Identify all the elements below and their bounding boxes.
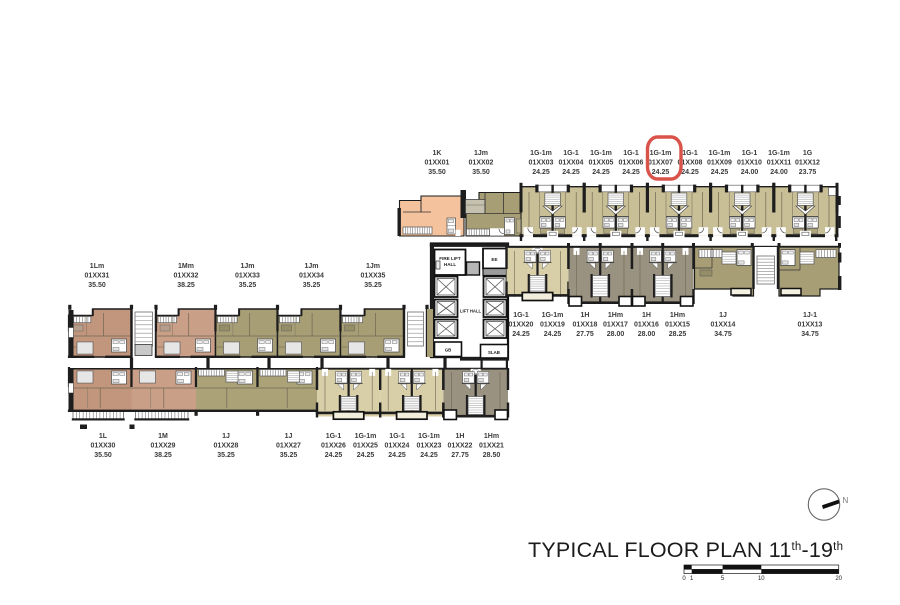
- svg-text:01XX12: 01XX12: [795, 159, 820, 166]
- svg-text:1G-1: 1G-1: [389, 433, 405, 440]
- svg-text:24.25: 24.25: [388, 452, 406, 459]
- svg-text:01XX18: 01XX18: [573, 322, 598, 329]
- svg-text:1Hm: 1Hm: [608, 312, 623, 319]
- svg-text:01XX32: 01XX32: [174, 273, 199, 280]
- svg-text:HALL: HALL: [444, 262, 456, 267]
- svg-text:01XX28: 01XX28: [214, 443, 239, 450]
- svg-text:01XX10: 01XX10: [737, 159, 762, 166]
- svg-text:01XX33: 01XX33: [235, 273, 260, 280]
- svg-text:24.00: 24.00: [741, 169, 759, 176]
- svg-text:1J: 1J: [222, 433, 230, 440]
- svg-text:28.00: 28.00: [607, 331, 625, 338]
- svg-text:24.25: 24.25: [681, 169, 699, 176]
- svg-text:01XX02: 01XX02: [469, 159, 494, 166]
- svg-text:N: N: [843, 496, 849, 505]
- svg-text:1G-1: 1G-1: [563, 150, 579, 157]
- svg-text:1G-1: 1G-1: [623, 150, 639, 157]
- svg-text:1Jm: 1Jm: [240, 263, 254, 270]
- svg-text:01XX31: 01XX31: [85, 273, 110, 280]
- svg-text:35.50: 35.50: [88, 282, 106, 289]
- svg-text:24.25: 24.25: [652, 169, 670, 176]
- svg-text:38.25: 38.25: [177, 282, 195, 289]
- svg-text:1G-1: 1G-1: [742, 150, 758, 157]
- svg-text:01XX19: 01XX19: [540, 322, 565, 329]
- svg-text:27.75: 27.75: [576, 331, 594, 338]
- svg-text:1J: 1J: [285, 433, 293, 440]
- svg-text:01XX22: 01XX22: [448, 443, 473, 450]
- svg-text:1G-1m: 1G-1m: [418, 433, 440, 440]
- svg-text:01XX06: 01XX06: [619, 159, 644, 166]
- svg-text:35.25: 35.25: [217, 452, 235, 459]
- svg-text:1J-1: 1J-1: [803, 312, 817, 319]
- svg-text:01XX03: 01XX03: [529, 159, 554, 166]
- svg-text:01XX26: 01XX26: [321, 443, 346, 450]
- svg-text:1H: 1H: [642, 312, 651, 319]
- svg-text:1L: 1L: [99, 433, 108, 440]
- svg-text:01XX35: 01XX35: [361, 273, 386, 280]
- svg-text:01XX34: 01XX34: [299, 273, 324, 280]
- svg-text:27.75: 27.75: [451, 452, 469, 459]
- svg-text:20: 20: [835, 576, 842, 582]
- svg-text:24.25: 24.25: [711, 169, 729, 176]
- svg-text:1G-1m: 1G-1m: [709, 150, 731, 157]
- svg-text:28.00: 28.00: [638, 331, 656, 338]
- svg-text:1H: 1H: [581, 312, 590, 319]
- svg-text:LIFT HALL: LIFT HALL: [460, 309, 482, 314]
- svg-text:01XX27: 01XX27: [276, 443, 301, 450]
- svg-text:35.50: 35.50: [428, 169, 446, 176]
- svg-text:1G-1m: 1G-1m: [355, 433, 377, 440]
- svg-text:01XX09: 01XX09: [707, 159, 732, 166]
- svg-text:1G-1m: 1G-1m: [650, 150, 672, 157]
- svg-text:1Jm: 1Jm: [366, 263, 380, 270]
- svg-text:1Hm: 1Hm: [670, 312, 685, 319]
- svg-text:1K: 1K: [433, 150, 442, 157]
- svg-text:01XX30: 01XX30: [91, 443, 116, 450]
- svg-text:1G-1: 1G-1: [326, 433, 342, 440]
- svg-text:01XX07: 01XX07: [648, 159, 673, 166]
- svg-text:SLAB: SLAB: [488, 350, 500, 355]
- svg-text:01XX13: 01XX13: [798, 322, 823, 329]
- svg-text:38.25: 38.25: [154, 452, 172, 459]
- svg-text:1Mm: 1Mm: [178, 263, 194, 270]
- svg-text:1G-1: 1G-1: [513, 312, 529, 319]
- svg-text:1J: 1J: [719, 312, 727, 319]
- svg-text:1H: 1H: [456, 433, 465, 440]
- svg-text:GB: GB: [445, 348, 452, 353]
- svg-text:28.50: 28.50: [483, 452, 501, 459]
- svg-text:01XX29: 01XX29: [151, 443, 176, 450]
- svg-text:1Jm: 1Jm: [474, 150, 488, 157]
- svg-text:24.25: 24.25: [357, 452, 375, 459]
- svg-text:1G-1m: 1G-1m: [542, 312, 564, 319]
- svg-text:01XX01: 01XX01: [425, 159, 450, 166]
- svg-text:24.00: 24.00: [770, 169, 788, 176]
- svg-text:1M: 1M: [158, 433, 168, 440]
- svg-text:35.50: 35.50: [472, 169, 490, 176]
- svg-text:24.25: 24.25: [325, 452, 343, 459]
- svg-text:24.25: 24.25: [420, 452, 438, 459]
- svg-text:35.50: 35.50: [94, 452, 112, 459]
- svg-text:01XX16: 01XX16: [634, 322, 659, 329]
- svg-text:01XX11: 01XX11: [767, 159, 792, 166]
- svg-text:24.25: 24.25: [622, 169, 640, 176]
- svg-text:01XX20: 01XX20: [509, 322, 534, 329]
- svg-text:1Jm: 1Jm: [304, 263, 318, 270]
- svg-text:01XX17: 01XX17: [603, 322, 628, 329]
- svg-text:01XX04: 01XX04: [559, 159, 584, 166]
- svg-text:01XX14: 01XX14: [711, 322, 736, 329]
- svg-text:01XX15: 01XX15: [665, 322, 690, 329]
- svg-text:23.75: 23.75: [799, 169, 817, 176]
- svg-text:01XX21: 01XX21: [479, 443, 504, 450]
- svg-text:EE: EE: [491, 257, 497, 262]
- svg-text:24.25: 24.25: [592, 169, 610, 176]
- svg-text:35.25: 35.25: [280, 452, 298, 459]
- svg-text:35.25: 35.25: [303, 282, 321, 289]
- svg-text:24.25: 24.25: [512, 331, 530, 338]
- svg-text:1G: 1G: [803, 150, 813, 157]
- svg-text:24.25: 24.25: [532, 169, 550, 176]
- svg-text:24.25: 24.25: [562, 169, 580, 176]
- svg-text:1G-1: 1G-1: [682, 150, 698, 157]
- svg-text:1G-1m: 1G-1m: [590, 150, 612, 157]
- svg-text:28.25: 28.25: [669, 331, 687, 338]
- svg-text:01XX05: 01XX05: [589, 159, 614, 166]
- svg-text:1Lm: 1Lm: [90, 263, 104, 270]
- svg-text:35.25: 35.25: [239, 282, 257, 289]
- svg-text:1Hm: 1Hm: [484, 433, 499, 440]
- svg-text:1G-1m: 1G-1m: [768, 150, 790, 157]
- svg-text:24.25: 24.25: [544, 331, 562, 338]
- svg-text:35.25: 35.25: [364, 282, 382, 289]
- svg-text:01XX23: 01XX23: [417, 443, 442, 450]
- svg-text:34.75: 34.75: [801, 331, 819, 338]
- svg-text:10: 10: [758, 576, 765, 582]
- svg-text:FIRE LIFT: FIRE LIFT: [439, 256, 461, 261]
- svg-text:01XX24: 01XX24: [385, 443, 410, 450]
- svg-text:34.75: 34.75: [714, 331, 732, 338]
- svg-text:01XX25: 01XX25: [353, 443, 378, 450]
- svg-text:1G-1m: 1G-1m: [530, 150, 552, 157]
